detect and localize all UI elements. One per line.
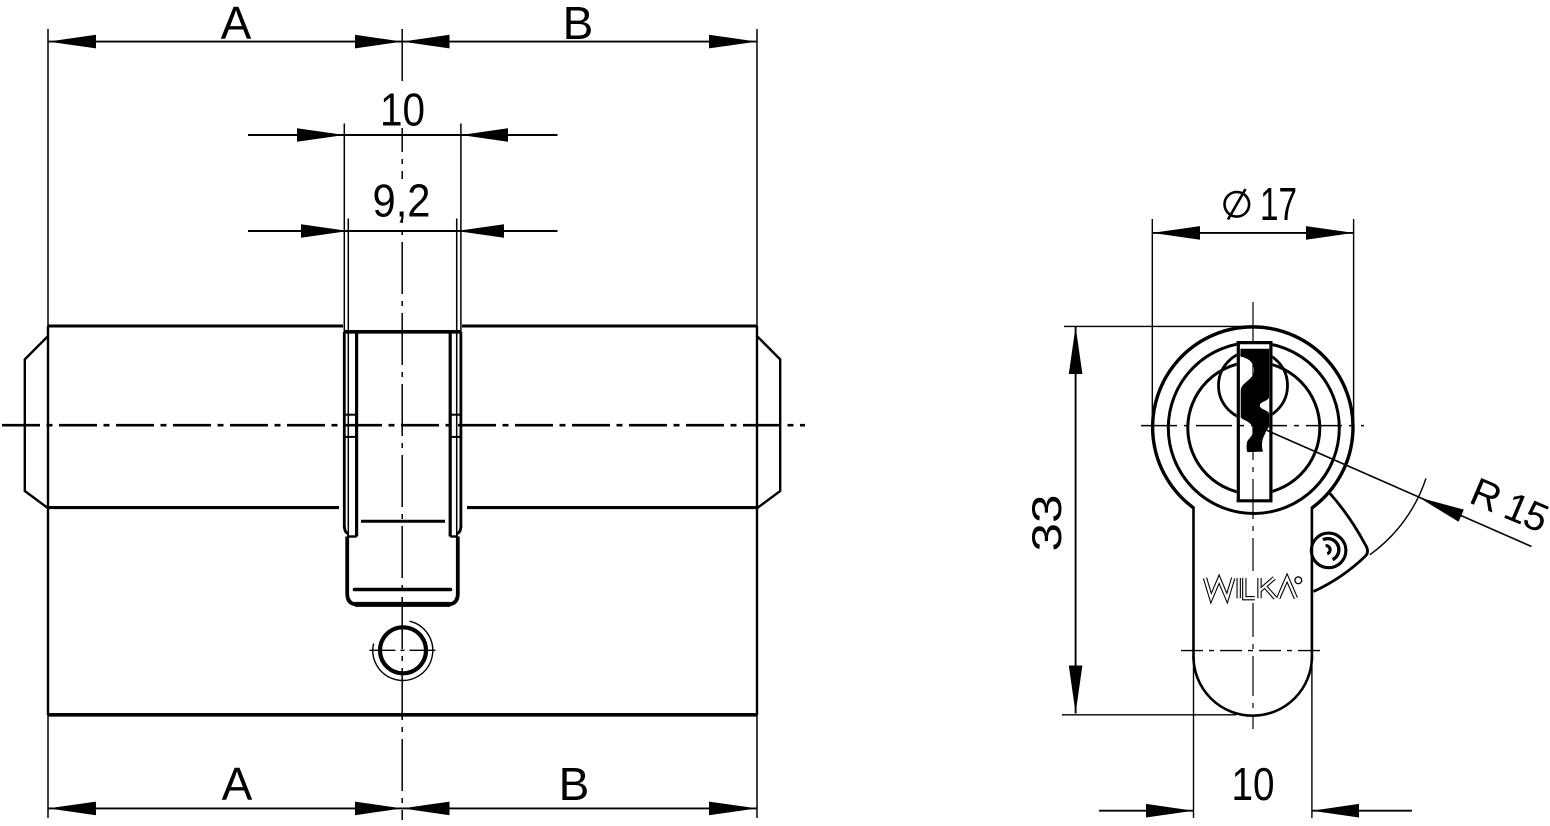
svg-text:A: A [221, 0, 252, 49]
svg-text:10: 10 [380, 84, 425, 136]
svg-text:9,2: 9,2 [373, 175, 431, 227]
svg-text:B: B [563, 0, 594, 49]
svg-text:B: B [559, 758, 590, 810]
svg-text:33: 33 [1023, 495, 1070, 552]
svg-text:A: A [222, 758, 253, 810]
svg-text:17: 17 [1260, 178, 1297, 230]
svg-text:10: 10 [1232, 758, 1275, 810]
